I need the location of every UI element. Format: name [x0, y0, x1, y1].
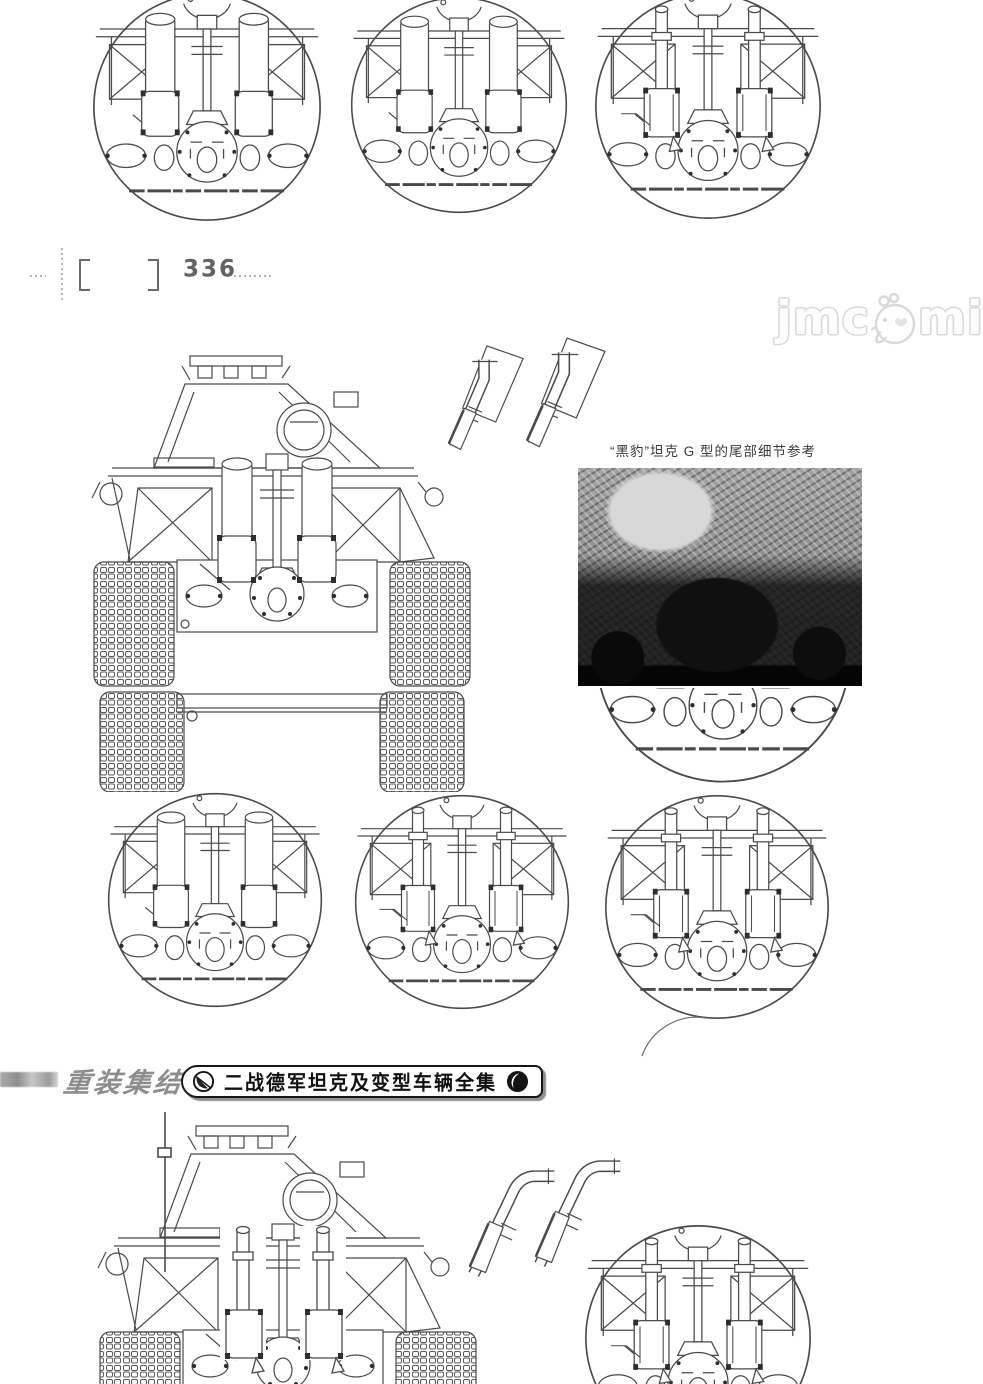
stray-arc-fragment	[638, 1006, 710, 1058]
rear-detail-circle-mid-3	[602, 792, 832, 1022]
rear-detail-circle-mid-2	[352, 792, 572, 1012]
photo-caption: “黑豹”坦克 G 型的尾部细节参考	[610, 440, 860, 460]
watermark-text-right: mic	[918, 291, 983, 345]
bird-mascot-icon	[867, 292, 921, 348]
watermark-jmcomic: jmc mic	[776, 288, 983, 348]
book-page: { "page": { "number": "336", "background…	[0, 0, 983, 1384]
rear-detail-circle-top-2	[348, 0, 570, 216]
crop-marks	[30, 248, 280, 300]
page-number: 336	[183, 255, 237, 282]
footer-volume-badge: 二战德军坦克及变型车辆全集	[181, 1065, 543, 1098]
photo-panther-rear	[578, 468, 862, 686]
rear-detail-circle-mid-1	[105, 790, 325, 1010]
footer-series-title: 重装集结	[61, 1061, 186, 1100]
rear-detail-circle-partial-bottom	[582, 1222, 814, 1384]
panther-rear-drawing-main	[82, 342, 482, 792]
footer-volume-title: 二战德军坦克及变型车辆全集	[224, 1067, 497, 1095]
panther-rear-drawing-bottom	[88, 1112, 490, 1384]
watermark-text-left: jmc	[776, 291, 870, 345]
crescent-circle-icon	[506, 1070, 529, 1093]
rear-detail-circle-top-3	[592, 0, 824, 222]
half-shaded-circle-icon	[192, 1070, 215, 1093]
rear-detail-circle-partial-under-photo	[592, 688, 854, 790]
rear-detail-circle-top-1	[90, 0, 324, 224]
footer-gradient-strip	[0, 1072, 58, 1087]
antenna-mast	[150, 1112, 180, 1272]
